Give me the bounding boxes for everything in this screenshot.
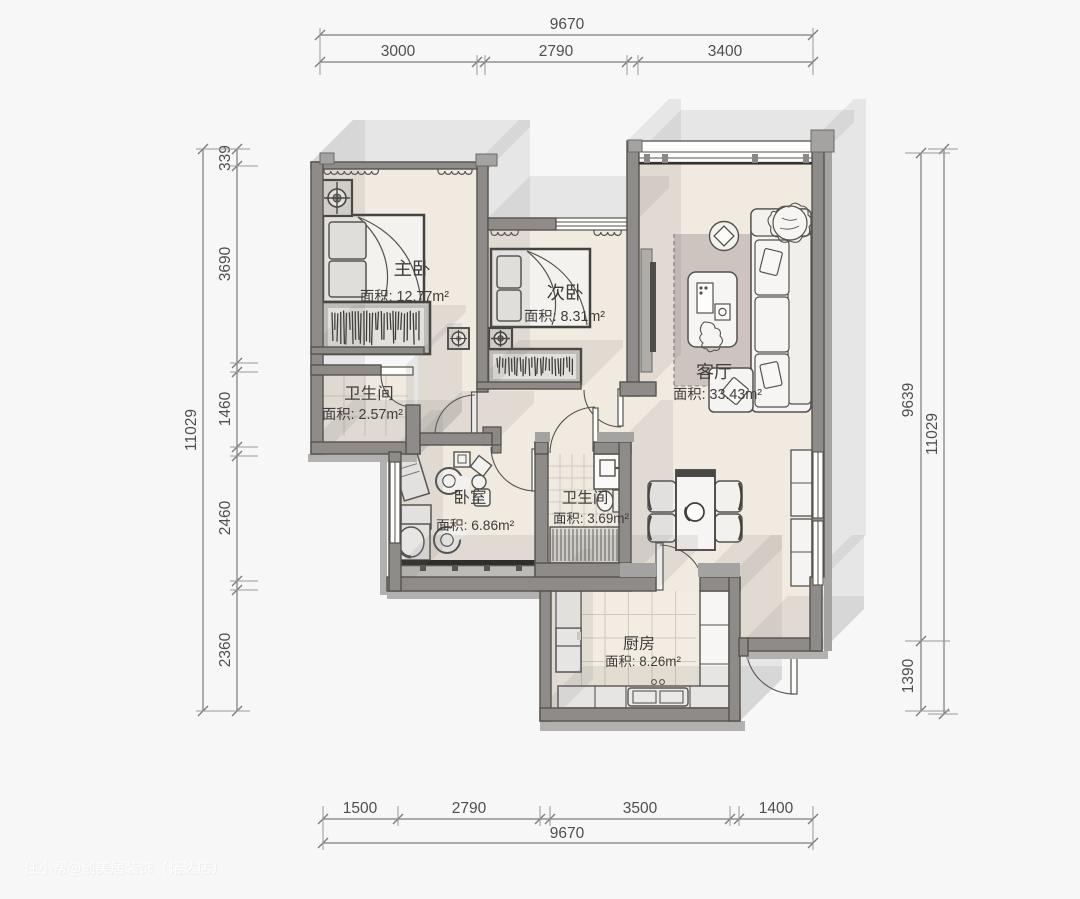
svg-text:: 12.77m²: : 12.77m² xyxy=(389,289,450,305)
svg-text:3690: 3690 xyxy=(217,246,234,281)
svg-text:11029: 11029 xyxy=(924,413,941,455)
svg-text:11029: 11029 xyxy=(183,409,200,451)
svg-text:: 2.57m²: : 2.57m² xyxy=(351,407,404,423)
svg-text:3000: 3000 xyxy=(381,43,416,60)
svg-text:9639: 9639 xyxy=(900,383,917,417)
svg-text:1500: 1500 xyxy=(343,800,378,817)
svg-text:: 8.31m²: : 8.31m² xyxy=(553,309,606,325)
svg-text:2790: 2790 xyxy=(539,43,574,60)
svg-text:: 3.69m²: : 3.69m² xyxy=(580,511,630,526)
svg-text:3500: 3500 xyxy=(623,800,658,817)
svg-text:9670: 9670 xyxy=(550,16,585,33)
svg-text:: 33.43m²: : 33.43m² xyxy=(702,387,763,403)
svg-text:2460: 2460 xyxy=(217,500,234,535)
svg-text:2790: 2790 xyxy=(452,800,487,817)
svg-text:: 6.86m²: : 6.86m² xyxy=(464,518,515,533)
svg-text:: 8.26m²: : 8.26m² xyxy=(632,654,682,669)
svg-text:1400: 1400 xyxy=(759,800,794,817)
svg-text:3400: 3400 xyxy=(708,43,743,60)
svg-text:1460: 1460 xyxy=(217,391,234,426)
svg-text:1390: 1390 xyxy=(900,658,917,693)
svg-text:9670: 9670 xyxy=(550,825,585,842)
svg-text:2360: 2360 xyxy=(217,632,234,667)
